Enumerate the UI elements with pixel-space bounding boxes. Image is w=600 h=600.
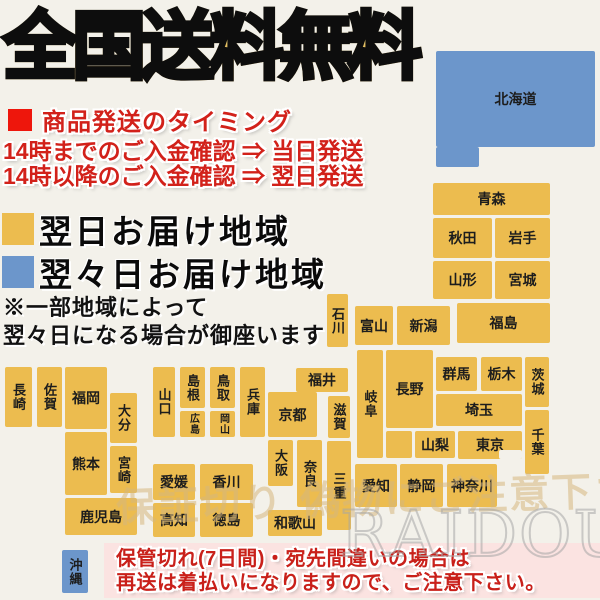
- map-block-群馬: 群馬: [436, 357, 477, 391]
- map-block-label: 山形: [449, 273, 477, 287]
- map-block-秋田: 秋田: [433, 218, 492, 258]
- map-block-兵庫: 兵庫: [240, 367, 265, 437]
- map-block-京都: 京都: [268, 392, 317, 437]
- map-block-label: 長崎: [12, 383, 25, 411]
- map-block-岡山: 岡山: [210, 411, 235, 437]
- map-block-label: 兵庫: [246, 388, 259, 416]
- map-block-富山: 富山: [355, 306, 393, 345]
- region-note: ※一部地域によって 翌々日になる場合が御座います: [3, 294, 325, 350]
- legend-second-day-label: 翌々日お届け地域: [39, 248, 327, 296]
- map-block-label: 山口: [158, 388, 171, 416]
- map-block-label: 石川: [331, 307, 344, 335]
- map-block-新潟: 新潟: [397, 306, 450, 345]
- timing-lines: 14時までのご入金確認 ⇒ 当日発送 14時以降のご入金確認 ⇒ 翌日発送: [3, 139, 363, 189]
- map-block-熊本: 熊本: [65, 432, 107, 495]
- map-block-label: 栃木: [488, 367, 516, 381]
- map-block-label: 佐賀: [43, 383, 56, 411]
- map-block-大分: 大分: [110, 393, 137, 443]
- shipping-info-banner: 全国送料無料 商品発送のタイミング 14時までのご入金確認 ⇒ 当日発送 14時…: [0, 0, 600, 600]
- brand-watermark: RAIDOU: [340, 498, 600, 572]
- map-block-label: 大分: [117, 404, 130, 432]
- legend-second-day: 翌々日お届け地域: [2, 248, 327, 296]
- map-block-鳥取: 鳥取: [210, 367, 235, 408]
- map-block-label: 山梨: [421, 438, 449, 452]
- map-block-label: 島根: [186, 374, 199, 402]
- note-line-1: ※一部地域によって: [3, 294, 325, 322]
- map-block-shape: [499, 450, 522, 459]
- map-block-長崎: 長崎: [5, 367, 32, 427]
- map-block-label: 青森: [478, 192, 506, 206]
- map-block-滋賀: 滋賀: [328, 396, 350, 438]
- map-block-label: 岡山: [218, 413, 228, 435]
- map-block-埼玉: 埼玉: [436, 394, 522, 426]
- red-square-icon: [8, 109, 32, 131]
- map-block-山形: 山形: [433, 261, 492, 299]
- map-block-label: 福井: [308, 373, 336, 387]
- map-block-label: 福島: [490, 316, 518, 330]
- map-block-福島: 福島: [457, 303, 550, 343]
- map-block-沖縄: 沖縄: [62, 550, 88, 593]
- map-block-山口: 山口: [153, 367, 175, 437]
- map-block-label: 京都: [279, 408, 307, 422]
- map-block-青森: 青森: [433, 183, 550, 215]
- map-block-label: 岐阜: [364, 390, 377, 418]
- map-block-label: 北海道: [495, 92, 537, 106]
- map-block-福井: 福井: [296, 368, 348, 392]
- map-block-岐阜: 岐阜: [357, 350, 383, 458]
- legend-next-day: 翌日お届け地域: [2, 205, 291, 253]
- map-block-label: 沖縄: [69, 558, 82, 586]
- map-block-label: 千葉: [531, 428, 544, 456]
- map-block-栃木: 栃木: [481, 357, 522, 391]
- legend-next-day-label: 翌日お届け地域: [39, 205, 291, 253]
- map-block-北海道: 北海道: [436, 51, 595, 147]
- map-block-福岡: 福岡: [65, 367, 107, 429]
- map-block-shape: [436, 147, 479, 167]
- timing-heading: 商品発送のタイミング: [8, 102, 292, 137]
- next-day-swatch-icon: [2, 213, 34, 245]
- map-block-山梨: 山梨: [415, 431, 455, 458]
- timing-line-1: 14時までのご入金確認 ⇒ 当日発送: [3, 139, 363, 164]
- map-block-label: 鳥取: [216, 374, 229, 402]
- map-block-label: 広島: [188, 413, 198, 435]
- timing-line-2: 14時以降のご入金確認 ⇒ 翌日発送: [3, 164, 363, 189]
- map-block-label: 茨城: [531, 368, 544, 396]
- map-block-宮城: 宮城: [495, 261, 550, 299]
- page-title: 全国送料無料: [3, 0, 433, 94]
- map-block-label: 群馬: [443, 367, 471, 381]
- map-block-label: 滋賀: [333, 403, 346, 431]
- map-block-label: 新潟: [410, 319, 438, 333]
- map-block-shape: [386, 431, 412, 458]
- map-block-長野: 長野: [386, 350, 433, 428]
- map-block-label: 長野: [396, 382, 424, 396]
- map-block-島根: 島根: [180, 367, 205, 408]
- map-block-label: 秋田: [449, 231, 477, 245]
- map-block-岩手: 岩手: [495, 218, 550, 258]
- map-block-label: 埼玉: [465, 403, 493, 417]
- footer-line-2: 再送は着払いになりますので、ご注意下さい。: [116, 571, 600, 595]
- timing-heading-label: 商品発送のタイミング: [42, 102, 292, 137]
- map-block-広島: 広島: [180, 411, 205, 437]
- map-block-佐賀: 佐賀: [37, 367, 62, 427]
- map-block-茨城: 茨城: [525, 357, 549, 407]
- map-block-石川: 石川: [327, 294, 348, 347]
- map-block-label: 富山: [360, 319, 388, 333]
- map-block-label: 宮城: [509, 273, 537, 287]
- note-line-2: 翌々日になる場合が御座います: [3, 322, 325, 350]
- second-day-swatch-icon: [2, 256, 34, 288]
- map-block-label: 福岡: [72, 391, 100, 405]
- map-block-label: 岩手: [509, 231, 537, 245]
- map-block-label: 熊本: [72, 457, 100, 471]
